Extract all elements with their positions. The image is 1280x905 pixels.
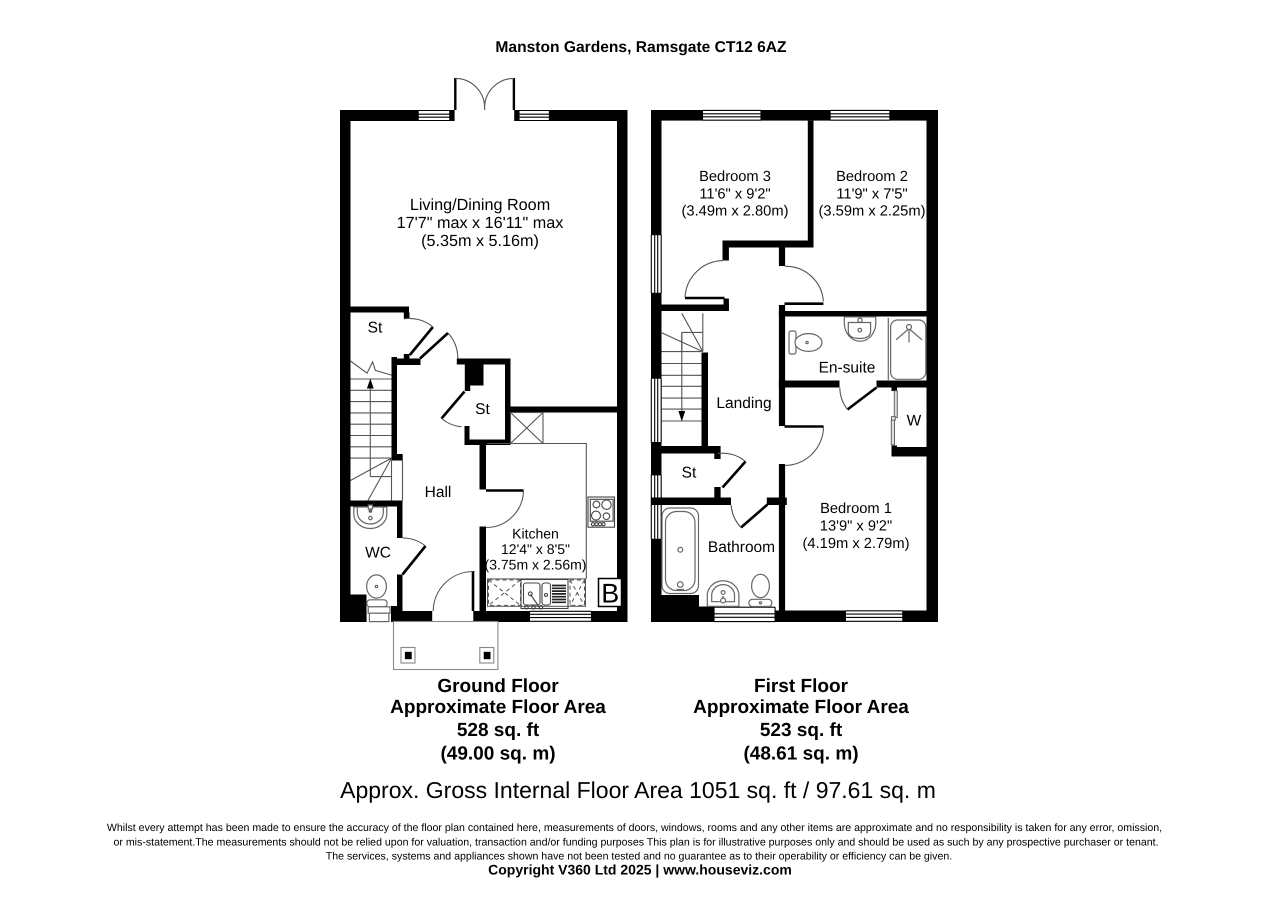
svg-text:Bedroom 3: Bedroom 3 xyxy=(699,169,771,185)
svg-text:Bedroom 2: Bedroom 2 xyxy=(836,169,908,185)
svg-text:11'9" x 7'5": 11'9" x 7'5" xyxy=(836,186,907,202)
svg-text:First Floor: First Floor xyxy=(754,676,849,697)
svg-text:Hall: Hall xyxy=(425,484,452,501)
svg-text:or mis-statement.The measureme: or mis-statement.The measurements should… xyxy=(113,837,1158,849)
svg-text:(4.19m x 2.79m): (4.19m x 2.79m) xyxy=(803,536,910,552)
svg-text:(3.59m x 2.25m): (3.59m x 2.25m) xyxy=(819,204,926,220)
svg-text:(5.35m x 5.16m): (5.35m x 5.16m) xyxy=(421,232,539,250)
svg-text:WC: WC xyxy=(365,545,391,562)
svg-text:St: St xyxy=(475,401,490,418)
svg-text:Ground Floor: Ground Floor xyxy=(437,676,559,697)
svg-text:Bathroom: Bathroom xyxy=(708,539,775,556)
svg-text:Whilst every attempt has been: Whilst every attempt has been made to en… xyxy=(107,822,1162,834)
svg-text:(48.61 sq. m): (48.61 sq. m) xyxy=(743,744,858,765)
svg-text:Copyright V360 Ltd 2025 | www.: Copyright V360 Ltd 2025 | www.houseviz.c… xyxy=(488,862,792,879)
svg-text:En-suite: En-suite xyxy=(819,360,876,377)
svg-text:Approximate Floor Area: Approximate Floor Area xyxy=(390,697,606,718)
svg-text:Kitchen: Kitchen xyxy=(512,526,559,542)
svg-text:Bedroom 1: Bedroom 1 xyxy=(820,501,892,517)
svg-text:W: W xyxy=(907,413,922,430)
svg-text:528 sq. ft: 528 sq. ft xyxy=(457,720,540,741)
svg-text:St: St xyxy=(682,465,697,482)
svg-text:Approx. Gross Internal Floor A: Approx. Gross Internal Floor Area 1051 s… xyxy=(340,777,936,803)
svg-text:Manston Gardens, Ramsgate CT12: Manston Gardens, Ramsgate CT12 6AZ xyxy=(495,39,787,56)
svg-text:Living/Dining Room: Living/Dining Room xyxy=(410,196,550,214)
svg-text:11'6" x 9'2": 11'6" x 9'2" xyxy=(699,186,770,202)
svg-text:Landing: Landing xyxy=(716,395,771,412)
svg-text:(49.00 sq. m): (49.00 sq. m) xyxy=(440,744,555,765)
svg-text:17'7" max x 16'11" max: 17'7" max x 16'11" max xyxy=(397,214,564,232)
svg-text:13'9" x 9'2": 13'9" x 9'2" xyxy=(820,519,892,535)
svg-text:B: B xyxy=(601,579,619,609)
svg-text:(3.75m x 2.56m): (3.75m x 2.56m) xyxy=(485,557,587,573)
svg-text:St: St xyxy=(368,320,383,337)
svg-text:Approximate Floor Area: Approximate Floor Area xyxy=(693,697,909,718)
svg-text:12'4" x 8'5": 12'4" x 8'5" xyxy=(501,541,570,557)
svg-text:(3.49m x 2.80m): (3.49m x 2.80m) xyxy=(682,204,789,220)
svg-text:523 sq. ft: 523 sq. ft xyxy=(760,720,843,741)
